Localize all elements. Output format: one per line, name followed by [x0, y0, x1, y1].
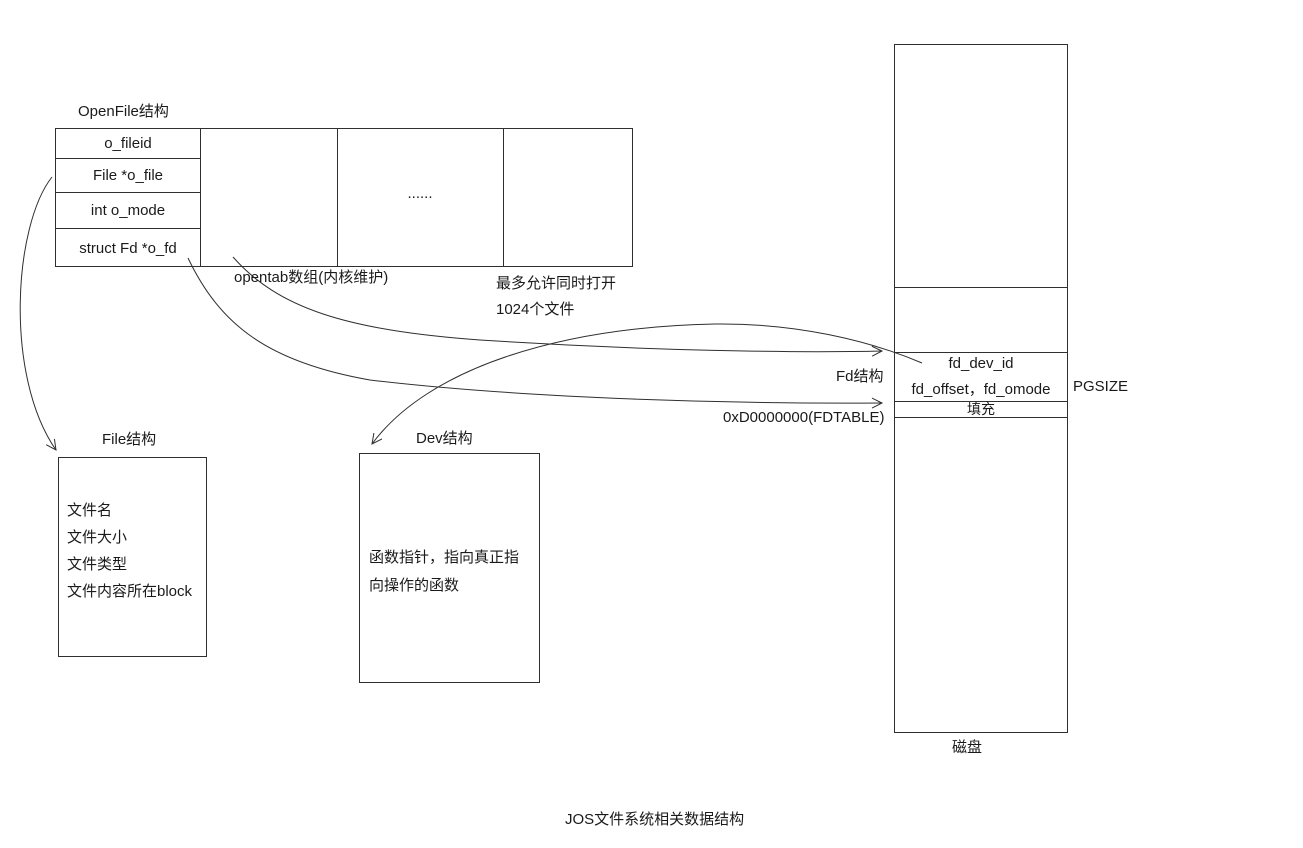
file-field-type: 文件类型	[67, 551, 192, 578]
opentab-caption: opentab数组(内核维护)	[234, 269, 388, 287]
fd-padding-bottom-line	[895, 417, 1067, 418]
opentab-ellipsis: ......	[337, 183, 503, 203]
opentab-array-table: o_fileid File *o_file int o_mode struct …	[55, 128, 633, 267]
pgsize-label: PGSIZE	[1073, 378, 1128, 396]
page-title: JOS文件系统相关数据结构	[565, 811, 744, 829]
fd-struct-label: Fd结构	[836, 368, 884, 386]
openfile-field-o-fd: struct Fd *o_fd	[56, 228, 200, 268]
openfile-field-o-fileid: o_fileid	[56, 129, 200, 158]
fd-field-offset-omode: fd_offset，fd_omode	[895, 377, 1067, 399]
table-divider	[503, 129, 504, 266]
file-field-size: 文件大小	[67, 524, 192, 551]
file-field-block: 文件内容所在block	[67, 578, 192, 605]
dev-struct-box: 函数指针，指向真正指 向操作的函数	[359, 453, 540, 683]
jos-filesystem-diagram: OpenFile结构 o_fileid File *o_file int o_m…	[0, 0, 1303, 848]
disk-divider	[895, 287, 1067, 288]
disk-label: 磁盘	[952, 739, 982, 757]
openfile-field-o-file: File *o_file	[56, 158, 200, 192]
dev-struct-label: Dev结构	[416, 430, 473, 448]
dev-desc-line-2: 向操作的函数	[369, 572, 519, 600]
fdtable-address-label: 0xD0000000(FDTABLE)	[723, 409, 884, 427]
note-line-1: 最多允许同时打开	[496, 271, 616, 297]
openfile-field-o-mode: int o_mode	[56, 192, 200, 228]
file-struct-box: 文件名 文件大小 文件类型 文件内容所在block	[58, 457, 207, 657]
dev-desc-line-1: 函数指针，指向真正指	[369, 544, 519, 572]
openfile-struct-label: OpenFile结构	[78, 103, 169, 121]
file-struct-label: File结构	[102, 431, 156, 449]
note-line-2: 1024个文件	[496, 297, 616, 323]
file-field-name: 文件名	[67, 497, 192, 524]
arrow-ofile-to-filestruct	[20, 177, 56, 450]
table-divider	[200, 129, 201, 266]
max-open-files-note: 最多允许同时打开 1024个文件	[496, 271, 616, 323]
disk-box: fd_dev_id fd_offset，fd_omode 填充	[894, 44, 1068, 733]
fd-field-dev-id: fd_dev_id	[895, 353, 1067, 373]
fd-padding-row: 填充	[895, 401, 1067, 417]
